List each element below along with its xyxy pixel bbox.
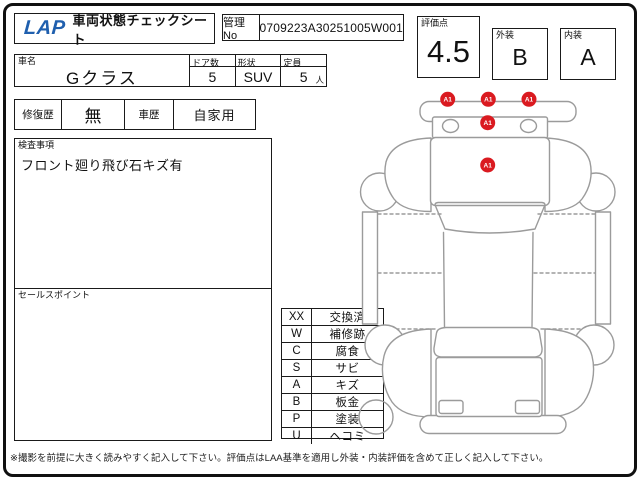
exterior-score-label: 外装 <box>493 29 547 41</box>
shape-label: 形状 <box>236 55 281 67</box>
legend-code: W <box>282 326 312 342</box>
doors-cell: ドア数 5 <box>189 55 235 86</box>
management-no-value: 0709223A30251005W001 <box>260 15 403 40</box>
legend-code: XX <box>282 309 312 325</box>
capacity-unit: 人 <box>316 74 325 86</box>
management-no-box: 管理No 0709223A30251005W001 <box>222 14 404 41</box>
doors-label: ドア数 <box>190 55 235 67</box>
damage-marker: A1 <box>481 92 496 107</box>
sales-point-label: セールスポイント <box>18 291 90 301</box>
doors-value: 5 <box>190 67 235 86</box>
car-name-value: Gクラス <box>15 64 189 89</box>
vehicle-check-sheet: LAP 車両状態チェックシート 管理No 0709223A30251005W00… <box>0 0 640 480</box>
interior-score-box: 内装 A <box>560 28 616 80</box>
legend-code: U <box>282 428 312 444</box>
svg-text:A1: A1 <box>484 120 493 127</box>
inspection-label: 検査事項 <box>18 141 54 151</box>
svg-text:A1: A1 <box>484 162 493 169</box>
lap-logo: LAP <box>23 17 66 40</box>
capacity-label: 定員 <box>281 55 326 67</box>
interior-score-value: A <box>561 41 615 79</box>
spare-tire <box>359 400 393 434</box>
left-side-panel <box>363 212 378 324</box>
svg-text:A1: A1 <box>484 97 493 104</box>
right-side-panel <box>596 212 611 324</box>
damage-marker: A1 <box>522 92 537 107</box>
capacity-cell: 定員 5 人 <box>280 55 326 86</box>
car-history-value: 自家用 <box>173 100 255 129</box>
sheet-title: 車両状態チェックシート <box>73 10 215 48</box>
damage-marker: A1 <box>440 92 455 107</box>
header-box: LAP 車両状態チェックシート <box>14 13 215 44</box>
legend-code: B <box>282 394 312 410</box>
rear-window <box>434 328 542 358</box>
windshield <box>435 203 545 234</box>
legend-code: P <box>282 411 312 427</box>
shape-cell: 形状 SUV <box>235 55 281 86</box>
management-no-label: 管理No <box>223 15 260 40</box>
exterior-score-value: B <box>493 41 547 79</box>
cabin-right-side <box>532 233 533 328</box>
legend-code: A <box>282 377 312 393</box>
repair-history-label: 修復歴 <box>15 100 61 129</box>
legend-code: S <box>282 360 312 376</box>
svg-text:A1: A1 <box>525 97 534 104</box>
car-name-cell: 車名 Gクラス <box>15 55 189 86</box>
exterior-score-box: 外装 B <box>492 28 548 80</box>
repair-history-row: 修復歴 無 車歴 自家用 <box>14 99 256 130</box>
interior-score-label: 内装 <box>561 29 615 41</box>
repair-history-value: 無 <box>61 100 124 129</box>
rear-bumper <box>420 416 566 434</box>
cabin-left-side <box>444 233 445 328</box>
overall-score-value: 4.5 <box>418 29 479 77</box>
overall-score-label: 評価点 <box>418 17 479 29</box>
tailgate <box>436 358 542 417</box>
svg-text:A1: A1 <box>444 97 453 104</box>
inspection-box: 検査事項 フロント廻り飛び石キズ有 <box>14 138 272 289</box>
car-history-label: 車歴 <box>124 100 173 129</box>
damage-marker: A1 <box>480 158 495 173</box>
overall-score-box: 評価点 4.5 <box>417 16 480 78</box>
sales-point-box: セールスポイント <box>14 288 272 441</box>
footer-note: ※撮影を前提に大きく読みやすく記入して下さい。評価点はLAA基準を適用し外装・内… <box>10 450 634 464</box>
damage-marker: A1 <box>480 115 495 130</box>
inspection-note: フロント廻り飛び石キズ有 <box>21 155 183 174</box>
shape-value: SUV <box>236 67 281 86</box>
panel-section-lines <box>378 214 595 329</box>
car-diagram: A1 A1 A1 A1 A1 <box>358 80 638 450</box>
vehicle-info-row: 車名 Gクラス ドア数 5 形状 SUV 定員 5 人 <box>14 54 327 87</box>
legend-code: C <box>282 343 312 359</box>
